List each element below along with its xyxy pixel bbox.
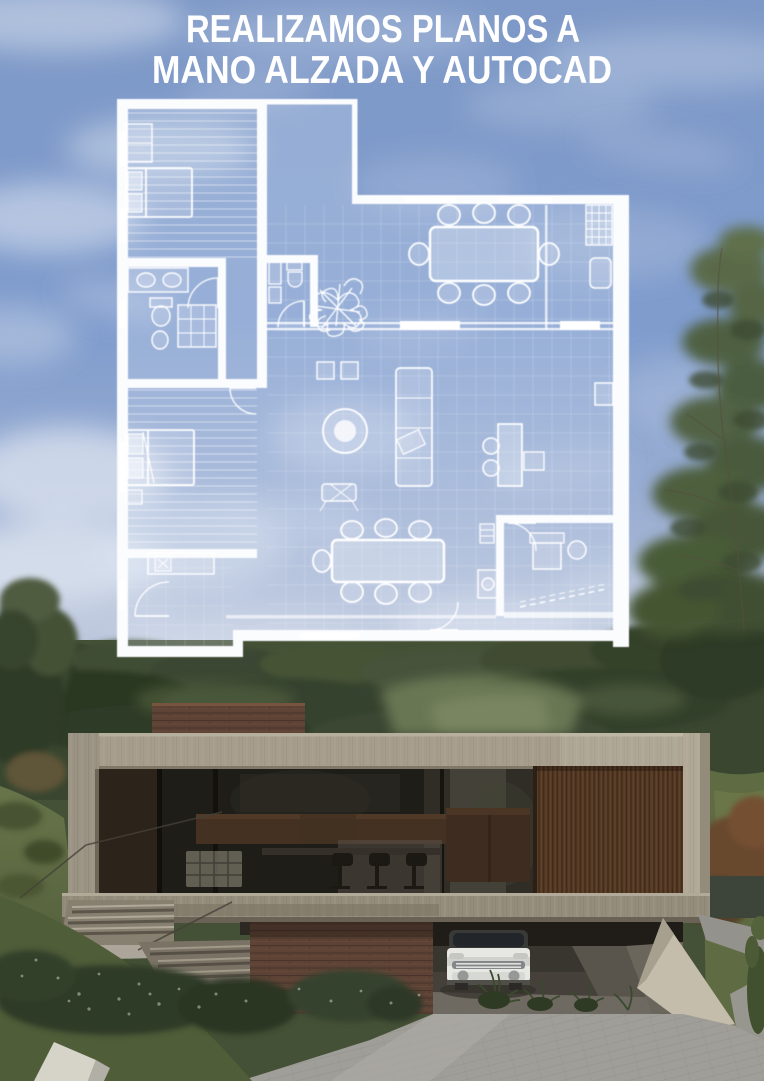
- svg-text:REALIZAMOS PLANOS A: REALIZAMOS PLANOS A: [186, 8, 580, 51]
- svg-text:MANO ALZADA Y AUTOCAD: MANO ALZADA Y AUTOCAD: [152, 49, 612, 92]
